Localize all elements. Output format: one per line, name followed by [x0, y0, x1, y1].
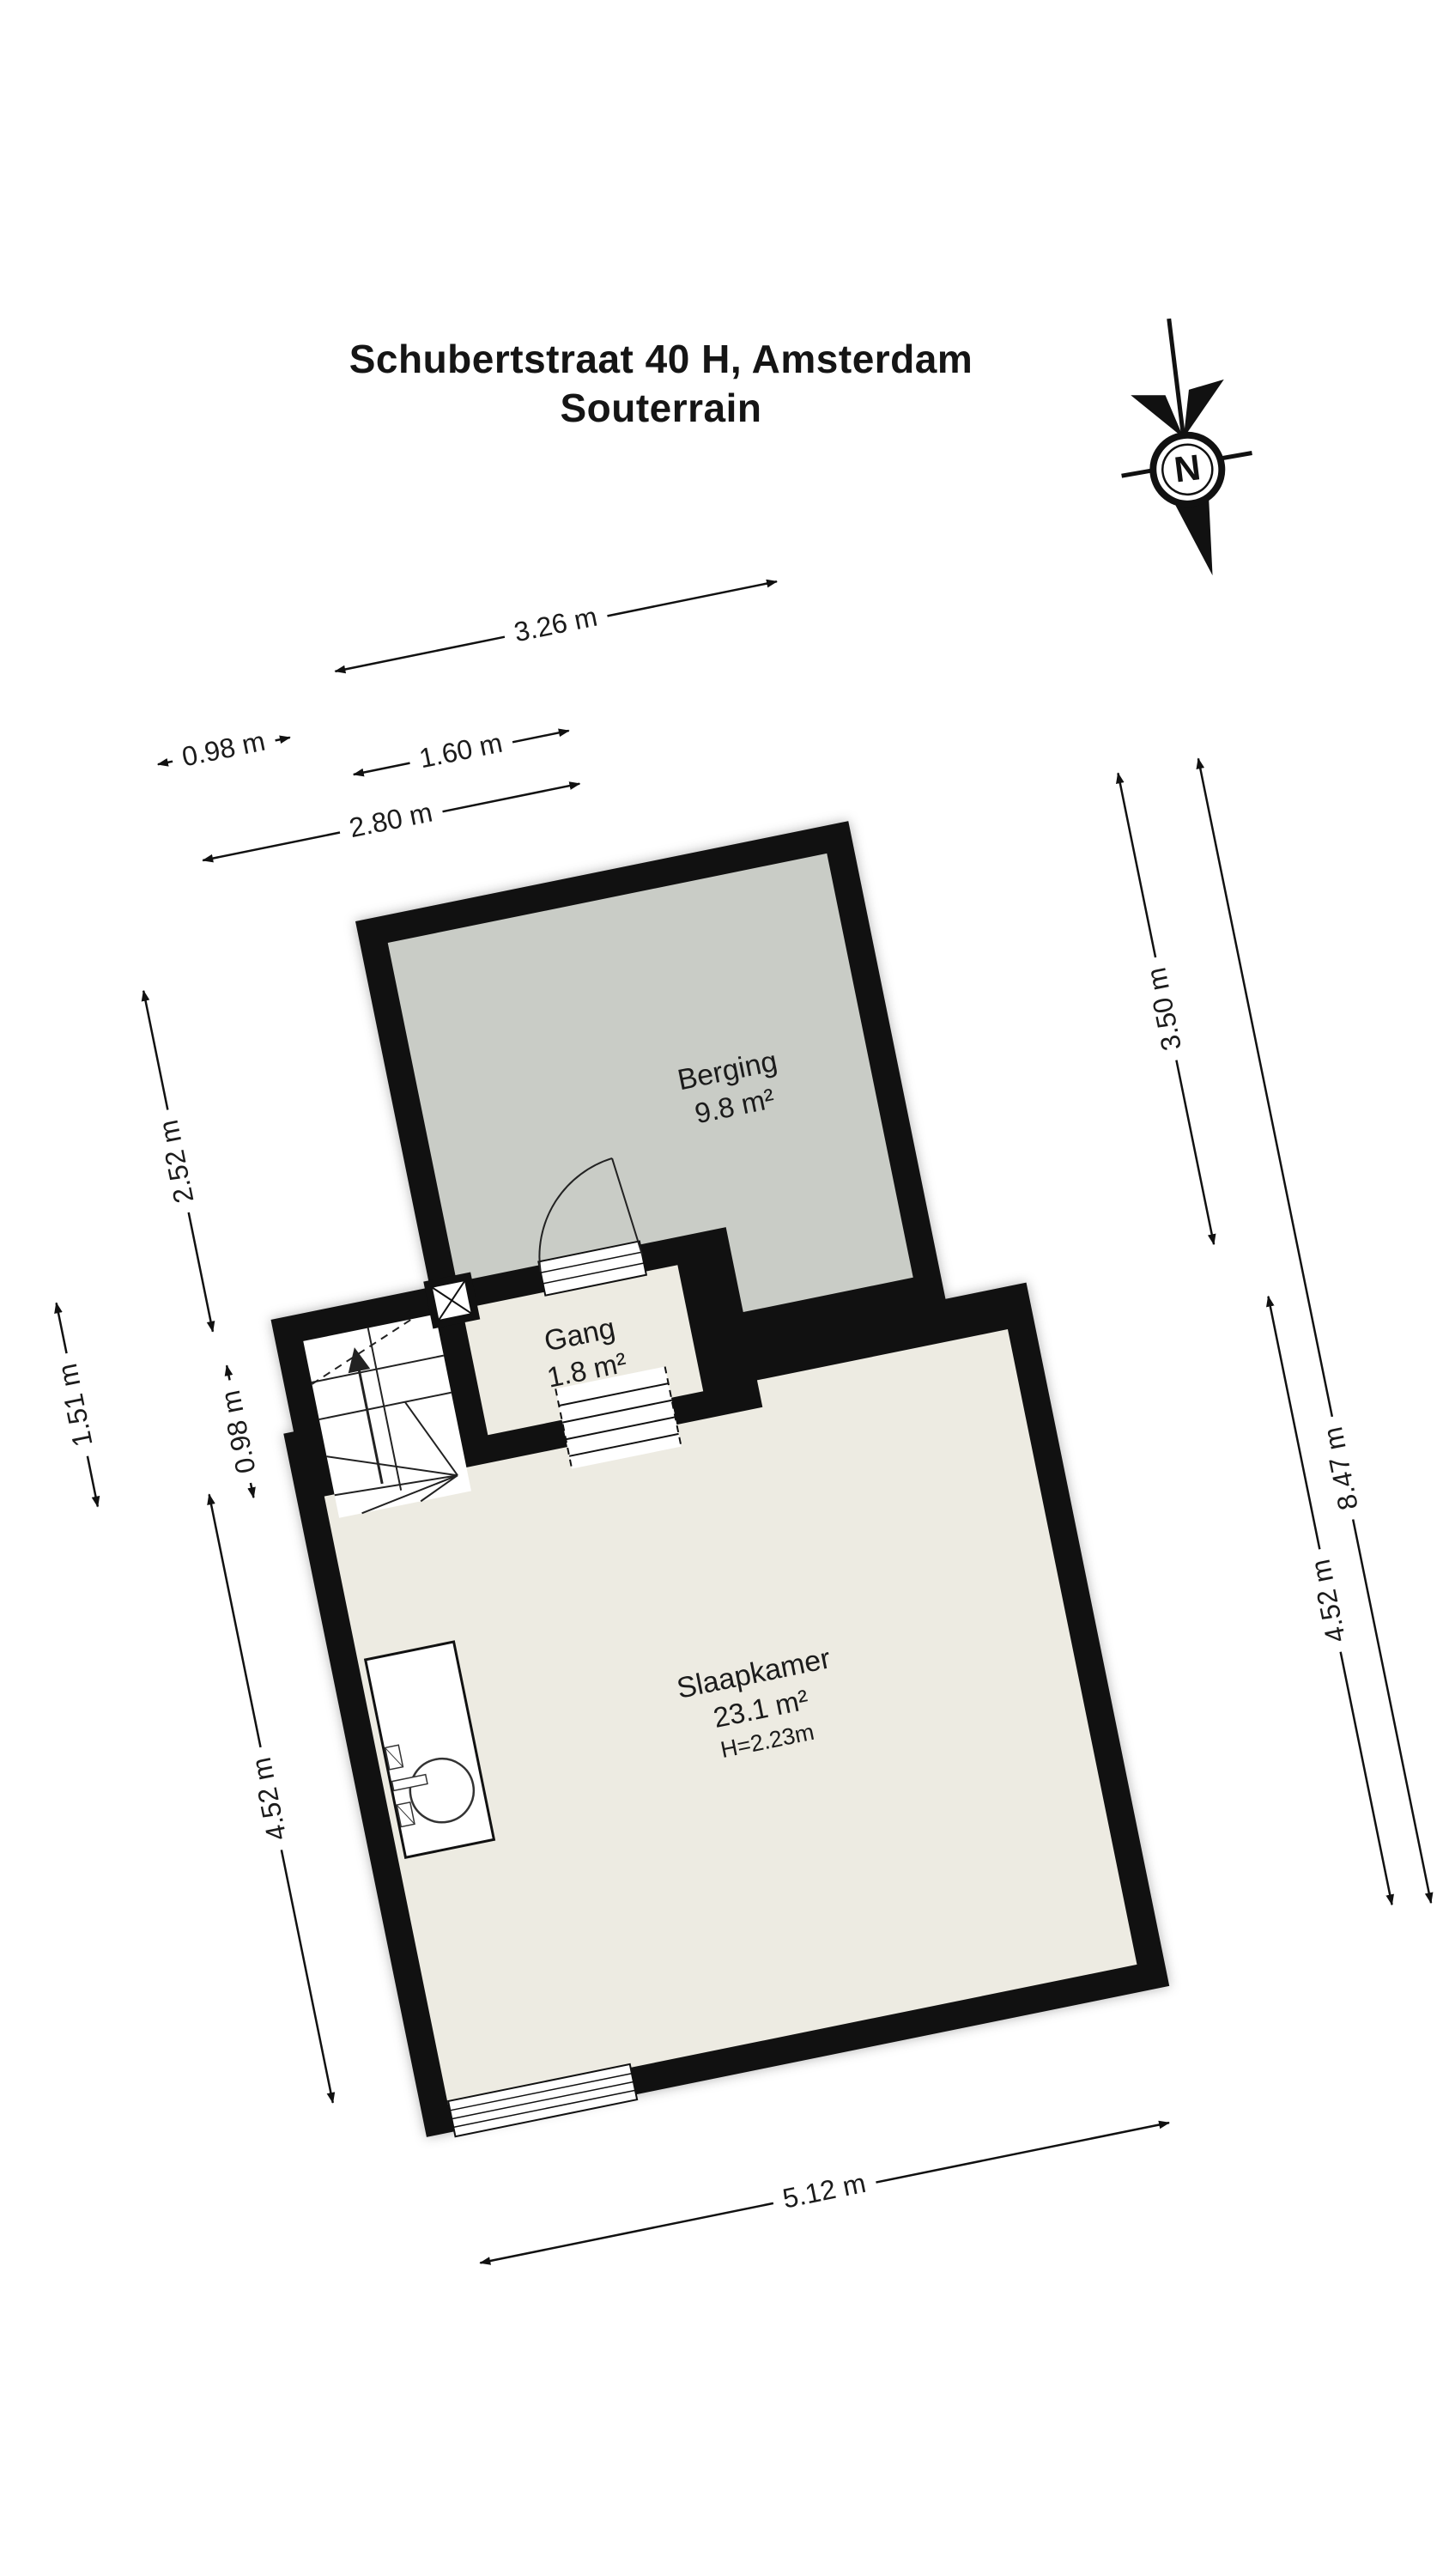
shaft-box [423, 1272, 480, 1328]
dimension-line [282, 1850, 333, 2102]
dimension-line [276, 738, 290, 740]
dimension-line [1198, 758, 1332, 1416]
dimension-line [354, 763, 410, 775]
dimension-line [876, 2123, 1169, 2182]
dimension-r847: 8.47 m [1181, 756, 1444, 1906]
dimension-line [607, 581, 776, 616]
dimension-label-t280: 2.80 m [347, 796, 435, 843]
dimension-line [1341, 1652, 1392, 1905]
dimension-t098: 0.98 m [155, 720, 293, 778]
dimension-line [480, 2203, 773, 2263]
floorplan-page: { "title": { "line1": "Schubertstraat 40… [0, 0, 1449, 2576]
dimension-l252: 2.52 m [126, 988, 226, 1335]
dimension-t280: 2.80 m [199, 767, 582, 874]
dimension-l098: 0.98 m [209, 1363, 267, 1501]
dimension-label-l151: 1.51 m [52, 1361, 99, 1449]
dimension-r350: 3.50 m [1100, 770, 1227, 1248]
dimension-l151: 1.51 m [39, 1300, 111, 1510]
floors-layer [219, 837, 1137, 2105]
dimension-line [1176, 1060, 1214, 1245]
dimension-line [335, 637, 504, 671]
dimension-line [57, 1303, 67, 1353]
floor-plan-svg: Berging 9.8 m² Gang 1.8 m² Slaapkamer 23… [0, 420, 1449, 2366]
dimension-label-l452: 4.52 m [246, 1755, 293, 1844]
dimension-line [251, 1483, 253, 1498]
dimension-line [209, 1494, 261, 1747]
dimension-label-l252: 2.52 m [153, 1117, 200, 1206]
dimension-line [1353, 1519, 1431, 1903]
dimension-label-t160: 1.60 m [416, 727, 505, 775]
dimension-r452: 4.52 m [1251, 1294, 1404, 1909]
dimension-line [88, 1456, 98, 1507]
dimension-label-l098: 0.98 m [215, 1388, 262, 1476]
dimension-line [512, 731, 569, 742]
dimension-label-t098: 0.98 m [179, 726, 268, 773]
dimension-b512: 5.12 m [476, 2105, 1172, 2276]
dimension-line [143, 991, 167, 1110]
dimension-label-r452: 4.52 m [1305, 1557, 1352, 1645]
dimension-line [1118, 773, 1155, 957]
dimension-t326: 3.26 m [331, 564, 779, 684]
dimension-label-b512: 5.12 m [780, 2167, 869, 2215]
dimension-t160: 1.60 m [350, 714, 572, 787]
dimension-line [443, 784, 580, 811]
dimension-line [203, 833, 340, 860]
compass-right-wing [1177, 380, 1230, 438]
dimension-line [158, 762, 173, 764]
dimension-line [1268, 1297, 1319, 1549]
dimension-label-r350: 3.50 m [1140, 965, 1187, 1054]
dimension-label-t326: 3.26 m [512, 601, 600, 648]
dimension-line [189, 1212, 213, 1332]
dimension-line [227, 1365, 229, 1380]
dimension-label-r847: 8.47 m [1317, 1425, 1364, 1513]
